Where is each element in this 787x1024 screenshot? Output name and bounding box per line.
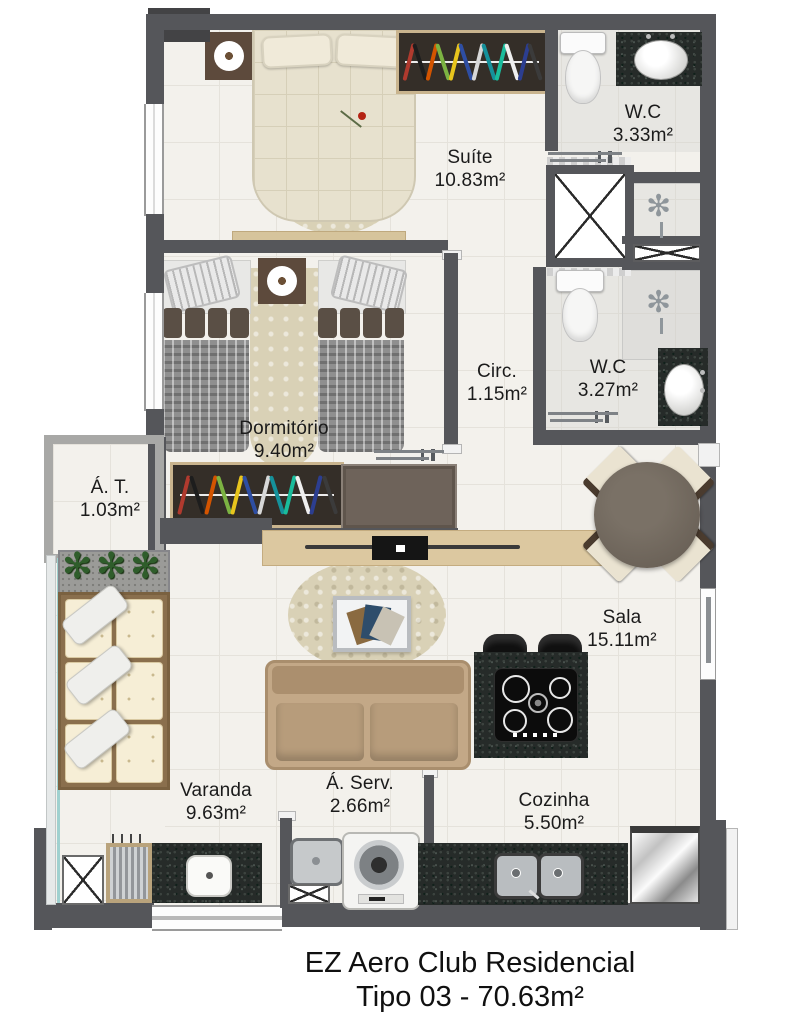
sofa bbox=[265, 660, 471, 770]
room-label-aserv: Á. Serv. 2.66m² bbox=[290, 772, 430, 818]
wall bbox=[545, 30, 558, 151]
burner bbox=[503, 709, 527, 733]
shaft bbox=[546, 165, 634, 267]
room-label-wc-social: W.C 3.27m² bbox=[538, 356, 678, 402]
round-decor-icon bbox=[214, 41, 244, 71]
wall bbox=[545, 430, 713, 445]
hanger-icon bbox=[322, 476, 338, 515]
room-area: 5.50m² bbox=[484, 812, 624, 835]
vent-small bbox=[288, 884, 330, 904]
faucet-icon bbox=[646, 34, 651, 39]
burner-center bbox=[528, 693, 548, 713]
sofa-back bbox=[272, 666, 464, 694]
wall bbox=[444, 253, 458, 451]
shaft-small bbox=[62, 855, 104, 905]
tv-icon bbox=[372, 536, 428, 560]
wall bbox=[148, 240, 448, 253]
hanger-icon bbox=[204, 475, 217, 514]
sofa-cushion bbox=[276, 703, 364, 761]
toilet bbox=[556, 270, 602, 344]
sink-icon bbox=[186, 855, 232, 897]
faucet-icon bbox=[700, 388, 705, 393]
suite-wall-decor bbox=[205, 32, 253, 80]
room-area: 9.40m² bbox=[199, 440, 369, 463]
room-label-varanda: Varanda 9.63m² bbox=[146, 779, 286, 825]
plant-icon: ✻ bbox=[96, 548, 126, 584]
toilet-bowl bbox=[565, 50, 601, 104]
suite-wardrobe bbox=[396, 30, 548, 94]
grill bbox=[106, 843, 152, 903]
shower-hose bbox=[660, 318, 663, 334]
shower-hose bbox=[660, 222, 663, 238]
door-dormitorio bbox=[374, 449, 444, 462]
hanger-icon bbox=[269, 476, 285, 515]
tv-logo bbox=[396, 545, 405, 552]
dorm-wall-decor bbox=[258, 258, 306, 304]
wall-cap bbox=[442, 444, 462, 454]
hanger-icon bbox=[257, 475, 270, 514]
sill bbox=[726, 828, 738, 930]
room-label-cozinha: Cozinha 5.50m² bbox=[484, 789, 624, 835]
window bbox=[700, 588, 716, 680]
kitchen-sink-bowl bbox=[538, 853, 584, 899]
room-label-wc-suite: W.C 3.33m² bbox=[573, 101, 713, 147]
window bbox=[698, 443, 720, 467]
wall bbox=[34, 903, 154, 928]
wall bbox=[146, 253, 164, 295]
fridge bbox=[630, 826, 700, 904]
unit-type-and-area: Tipo 03 - 70.63m² bbox=[150, 980, 787, 1014]
window-handle bbox=[706, 597, 711, 663]
room-label-dormitorio: Dormitório 9.40m² bbox=[199, 417, 369, 463]
toilet bbox=[560, 32, 604, 108]
room-name: Suíte bbox=[400, 146, 540, 169]
door-wc-social bbox=[548, 411, 618, 424]
cooktop-knobs bbox=[513, 733, 559, 737]
washer-display bbox=[369, 897, 385, 901]
plant-icon: ✻ bbox=[62, 548, 92, 584]
burner bbox=[549, 677, 571, 699]
sink-icon bbox=[634, 40, 688, 80]
washer-panel bbox=[358, 894, 404, 904]
drain bbox=[511, 868, 521, 878]
dorm-cabinet bbox=[341, 464, 457, 530]
room-area: 1.03m² bbox=[40, 499, 180, 522]
hanger-icon bbox=[283, 475, 296, 514]
room-name: Á. Serv. bbox=[290, 772, 430, 795]
faucet-icon bbox=[700, 370, 705, 375]
drain bbox=[312, 857, 320, 865]
window bbox=[144, 104, 164, 216]
burner bbox=[502, 675, 530, 703]
suite-double-bed bbox=[252, 28, 416, 222]
room-name: Varanda bbox=[146, 779, 286, 802]
room-name: Á. T. bbox=[40, 476, 180, 499]
window bbox=[152, 905, 282, 931]
room-area: 2.66m² bbox=[290, 795, 430, 818]
shower-icon: ✻ bbox=[646, 288, 671, 318]
headboard bbox=[318, 308, 404, 338]
coffee-table bbox=[333, 596, 411, 652]
hanger-icon bbox=[295, 476, 311, 515]
room-area: 10.83m² bbox=[400, 169, 540, 192]
plan-title: EZ Aero Club Residencial Tipo 03 - 70.63… bbox=[150, 946, 787, 1014]
room-name: Cozinha bbox=[484, 789, 624, 812]
room-area: 3.33m² bbox=[573, 124, 713, 147]
kitchen-island bbox=[474, 652, 588, 758]
drain bbox=[553, 868, 563, 878]
drain bbox=[206, 872, 213, 879]
pillow bbox=[261, 33, 333, 69]
round-decor-icon bbox=[267, 266, 297, 296]
sofa-cushion bbox=[370, 703, 458, 761]
laundry-tank bbox=[290, 838, 344, 886]
wall bbox=[146, 14, 164, 106]
room-label-sala: Sala 15.11m² bbox=[552, 606, 692, 652]
project-name: EZ Aero Club Residencial bbox=[150, 946, 787, 980]
door-suite-bath bbox=[548, 151, 622, 164]
room-label-at: Á. T. 1.03m² bbox=[40, 476, 180, 522]
grill-skewers bbox=[112, 834, 146, 843]
room-label-suite: Suíte 10.83m² bbox=[400, 146, 540, 192]
dining-table bbox=[594, 462, 700, 568]
vanity-counter bbox=[616, 32, 702, 86]
room-name: Dormitório bbox=[199, 417, 369, 440]
hanger-icon bbox=[230, 475, 243, 514]
toilet-bowl bbox=[562, 288, 598, 342]
kitchen-counter bbox=[418, 843, 628, 905]
room-name: W.C bbox=[538, 356, 678, 379]
varanda-counter bbox=[152, 843, 262, 903]
floor-plan: ✻ ✻ bbox=[0, 0, 787, 1024]
vent-duct bbox=[633, 244, 701, 262]
faucet-icon bbox=[670, 34, 675, 39]
hanger-icon bbox=[216, 476, 232, 515]
window bbox=[144, 293, 164, 411]
room-name: Sala bbox=[552, 606, 692, 629]
room-name: W.C bbox=[573, 101, 713, 124]
burner bbox=[547, 707, 573, 733]
room-area: 3.27m² bbox=[538, 379, 678, 402]
shower-icon: ✻ bbox=[646, 192, 671, 222]
rose-icon bbox=[358, 112, 366, 120]
room-area: 9.63m² bbox=[146, 802, 286, 825]
hanger-icon bbox=[310, 475, 323, 514]
cooktop-icon bbox=[494, 668, 578, 742]
hanger-icon bbox=[242, 476, 258, 515]
washing-machine bbox=[342, 832, 420, 910]
hanger-icon bbox=[189, 476, 205, 515]
washer-drum bbox=[354, 840, 404, 890]
glass-railing bbox=[46, 555, 56, 905]
plant-icon: ✻ bbox=[130, 548, 160, 584]
hanger-icon bbox=[528, 43, 544, 81]
room-area: 15.11m² bbox=[552, 629, 692, 652]
wall bbox=[148, 14, 712, 30]
headboard bbox=[163, 308, 249, 338]
